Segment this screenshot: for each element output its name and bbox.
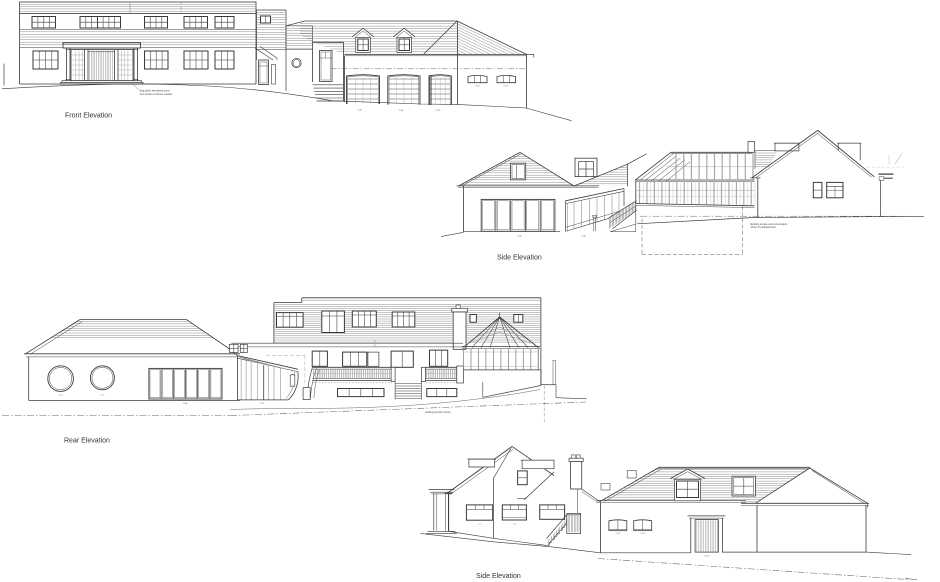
svg-text:G.05: G.05	[260, 403, 264, 405]
svg-text:LIGHT: LIGHT	[616, 533, 621, 535]
svg-text:LIGHT: LIGHT	[641, 533, 646, 535]
svg-text:1.01: 1.01	[478, 524, 481, 526]
svg-text:shown by dashed lines: shown by dashed lines	[751, 226, 777, 229]
svg-text:1.02: 1.02	[513, 524, 516, 526]
svg-text:Front Elevation: Front Elevation	[65, 113, 112, 120]
svg-text:G.11: G.11	[100, 394, 104, 396]
svg-text:LIGHT: LIGHT	[504, 85, 509, 87]
svg-text:LIGHT: LIGHT	[475, 85, 480, 87]
svg-text:Rear Elevation: Rear Elevation	[64, 438, 110, 445]
svg-text:Side Elevation: Side Elevation	[497, 255, 542, 262]
svg-text:Existing ground contour: Existing ground contour	[426, 411, 451, 414]
svg-text:new portico entrance created: new portico entrance created	[140, 93, 173, 96]
svg-text:Side Elevation: Side Elevation	[476, 573, 521, 580]
svg-text:G.10: G.10	[59, 394, 63, 396]
